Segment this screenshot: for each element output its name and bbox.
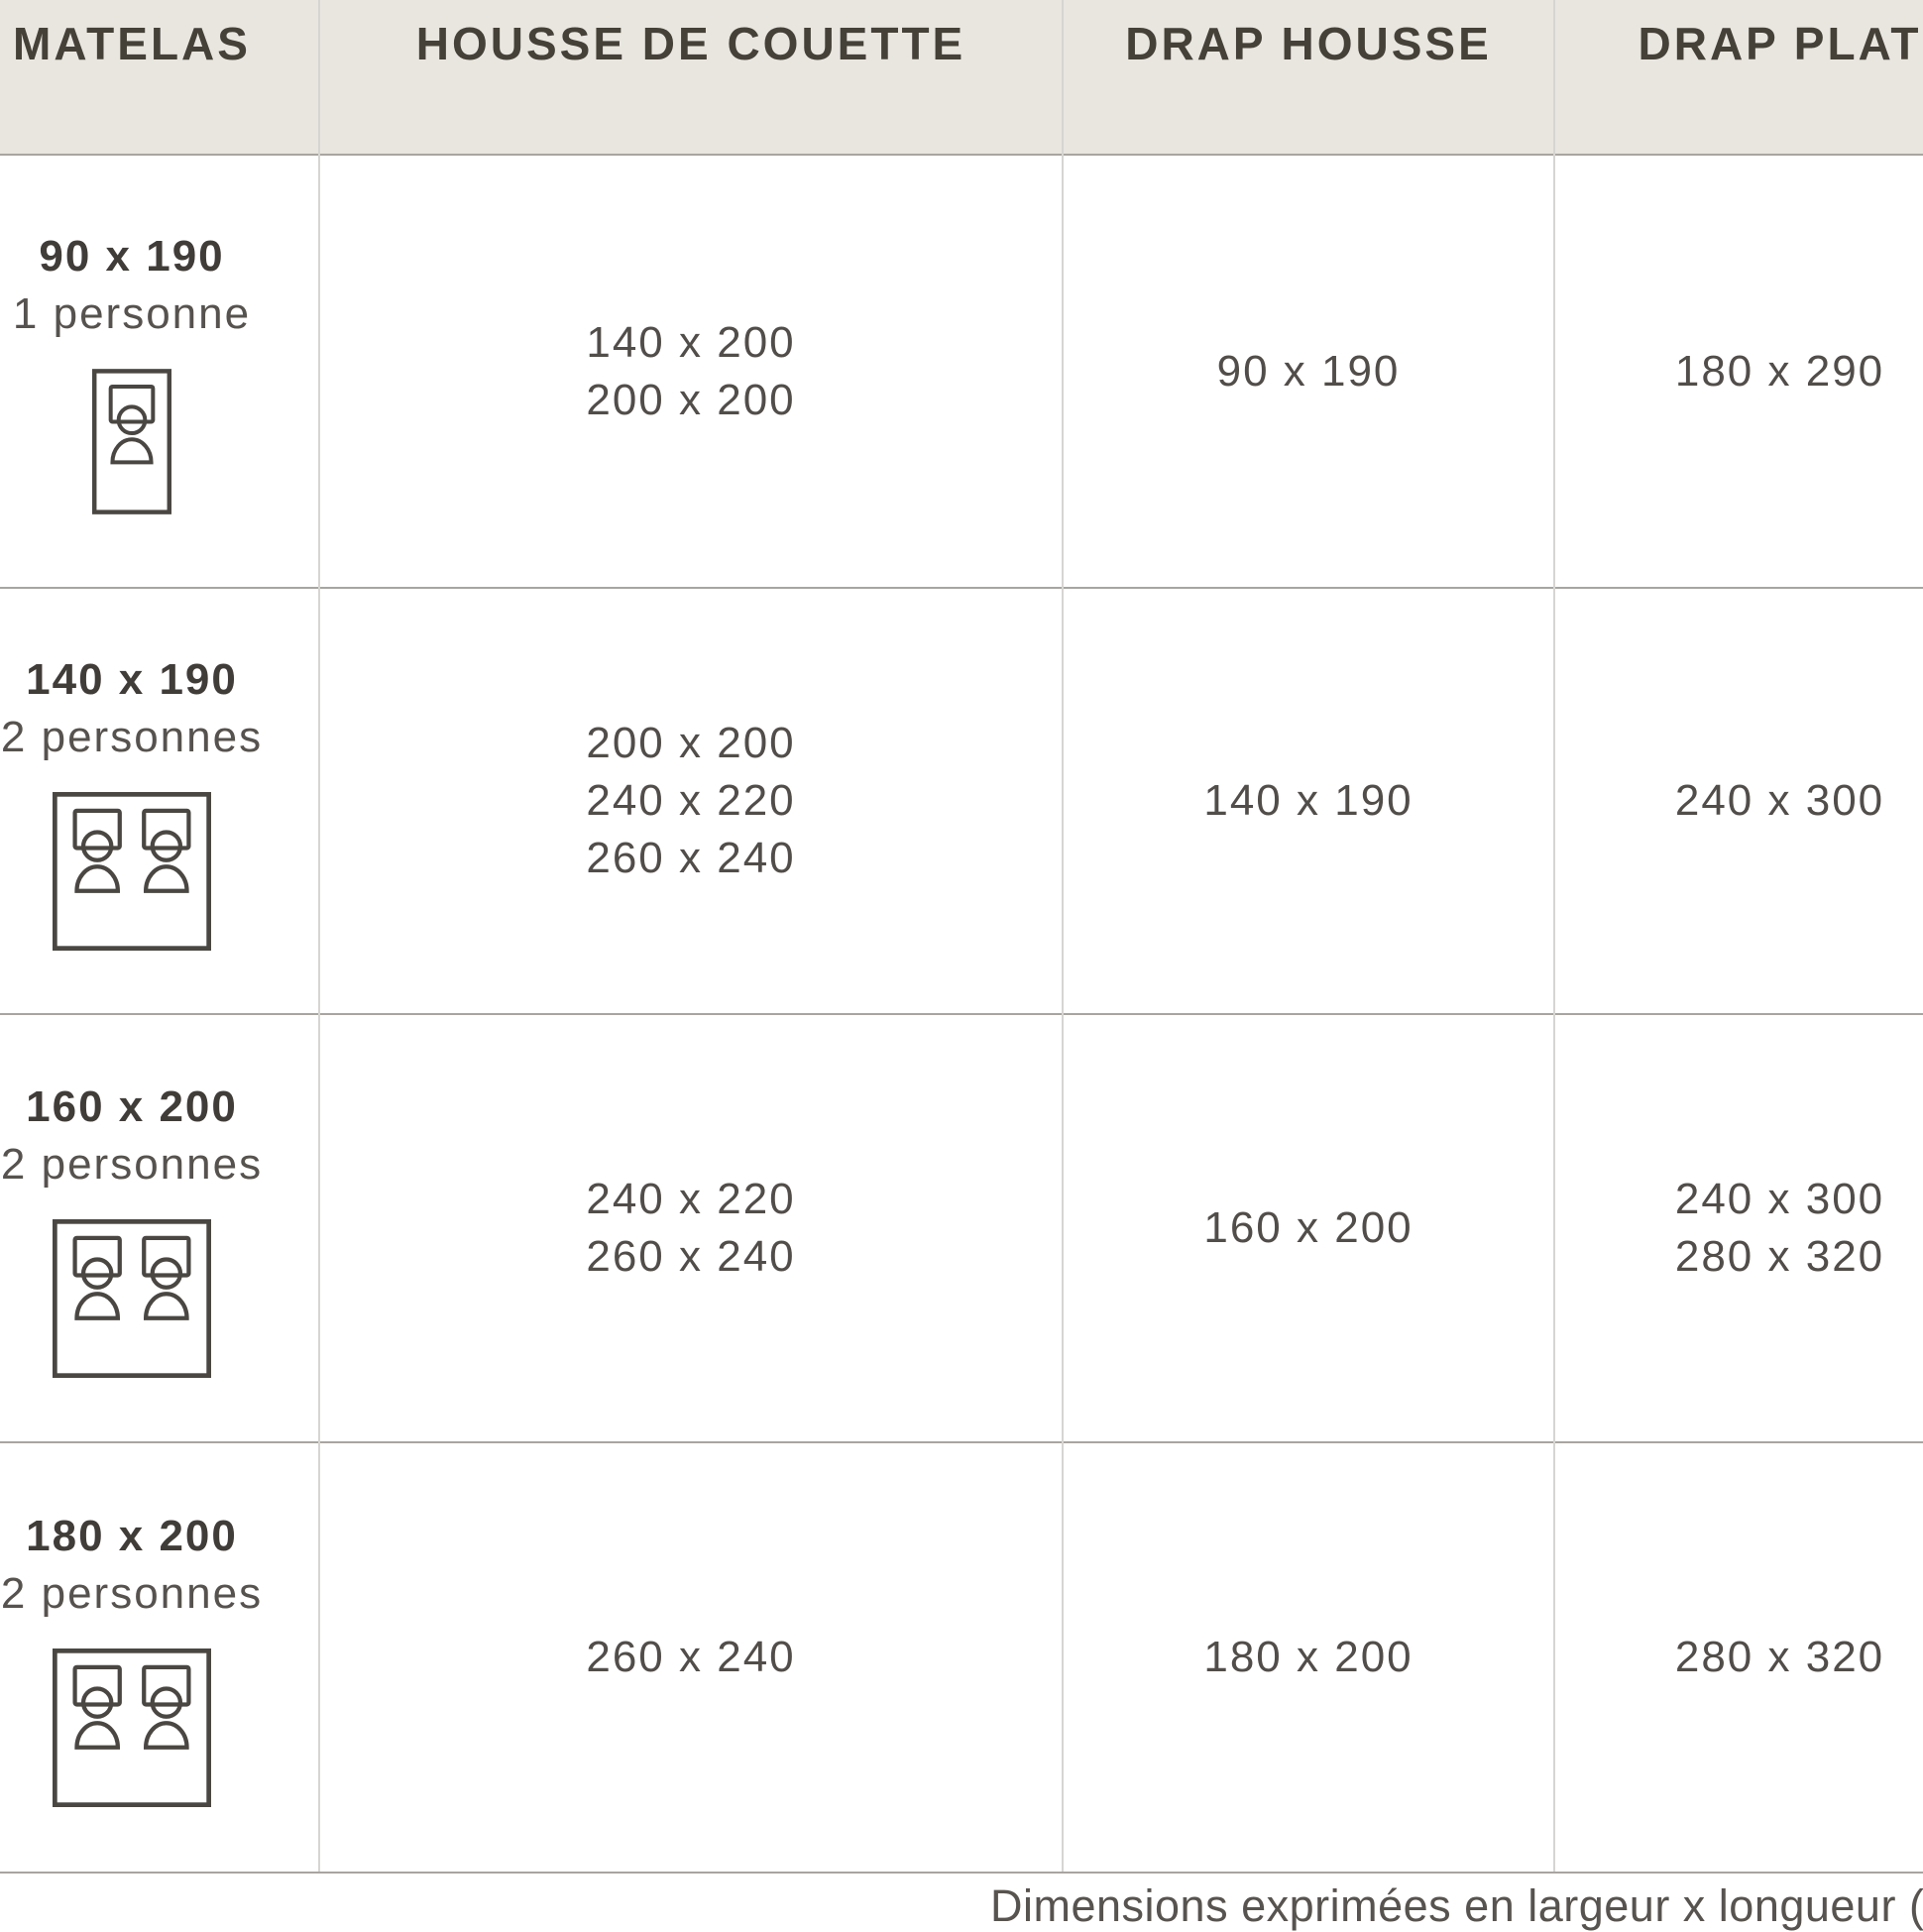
mattress-size: 90 x 190 [39, 228, 224, 285]
mattress-cell: 90 x 190 1 personne [0, 155, 319, 588]
column-header-drap-plat: DRAP PLAT [1554, 0, 1923, 155]
drap-housse-cell: 180 x 200 [1063, 1442, 1554, 1873]
drap-plat-cell: 240 x 300 [1554, 588, 1923, 1014]
bedding-size-table: MATELAS HOUSSE DE COUETTE DRAP HOUSSE DR… [0, 0, 1923, 1874]
table-row: 160 x 200 2 personnes 240 x 220 260 x 24… [0, 1014, 1923, 1442]
mattress-size: 180 x 200 [26, 1508, 238, 1565]
table-row: 140 x 190 2 personnes 200 x 200 240 x 22… [0, 588, 1923, 1014]
persons-label: 1 personne [13, 285, 251, 343]
drap-housse-cell: 90 x 190 [1063, 155, 1554, 588]
single-bed-icon [92, 369, 171, 514]
persons-label: 2 personnes [1, 709, 263, 766]
dimensions-footnote: Dimensions exprimées en largeur x longue… [990, 1880, 1923, 1932]
housse-de-couette-cell: 260 x 240 [319, 1442, 1063, 1873]
header-row: MATELAS HOUSSE DE COUETTE DRAP HOUSSE DR… [0, 0, 1923, 155]
double-bed-icon [53, 792, 211, 951]
mattress-cell: 160 x 200 2 personnes [0, 1014, 319, 1442]
drap-plat-cell: 240 x 300 280 x 320 [1554, 1014, 1923, 1442]
column-header-matelas: MATELAS [0, 0, 319, 155]
table-row: 180 x 200 2 personnes 260 x 240 180 x 20… [0, 1442, 1923, 1873]
housse-de-couette-cell: 240 x 220 260 x 240 [319, 1014, 1063, 1442]
persons-label: 2 personnes [1, 1136, 263, 1193]
drap-housse-cell: 140 x 190 [1063, 588, 1554, 1014]
mattress-size: 160 x 200 [26, 1079, 238, 1136]
drap-plat-cell: 180 x 290 [1554, 155, 1923, 588]
double-bed-icon [53, 1219, 211, 1378]
drap-housse-cell: 160 x 200 [1063, 1014, 1554, 1442]
table-row: 90 x 190 1 personne 140 x 200 200 x 200 … [0, 155, 1923, 588]
mattress-cell: 140 x 190 2 personnes [0, 588, 319, 1014]
column-header-housse-de-couette: HOUSSE DE COUETTE [319, 0, 1063, 155]
mattress-cell: 180 x 200 2 personnes [0, 1442, 319, 1873]
column-header-drap-housse: DRAP HOUSSE [1063, 0, 1554, 155]
housse-de-couette-cell: 200 x 200 240 x 220 260 x 240 [319, 588, 1063, 1014]
double-bed-icon [53, 1648, 211, 1807]
mattress-size: 140 x 190 [26, 651, 238, 709]
housse-de-couette-cell: 140 x 200 200 x 200 [319, 155, 1063, 588]
persons-label: 2 personnes [1, 1565, 263, 1623]
drap-plat-cell: 280 x 320 [1554, 1442, 1923, 1873]
